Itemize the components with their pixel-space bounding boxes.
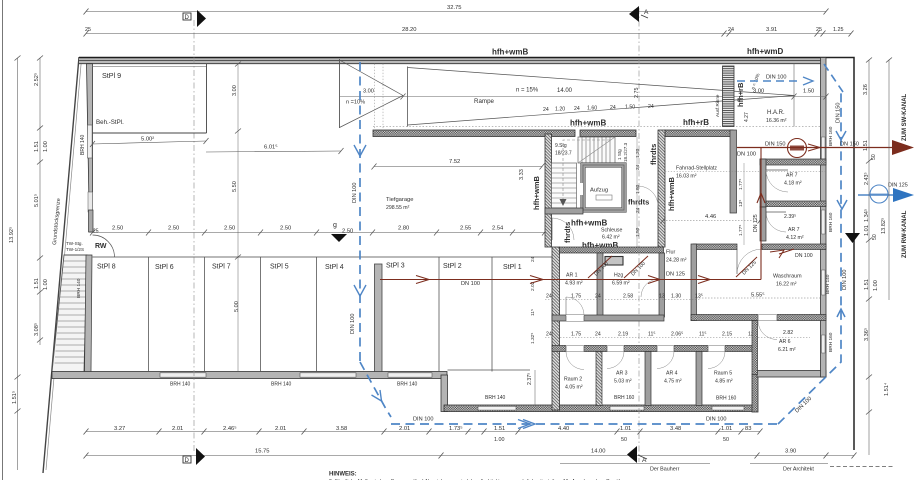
svg-text:1.01: 1.01: [721, 426, 732, 432]
svg-text:18.2/27.3: 18.2/27.3: [623, 142, 628, 162]
svg-text:Der Architekt: Der Architekt: [783, 467, 814, 473]
svg-text:TW-Stg.: TW-Stg.: [66, 241, 83, 246]
svg-text:1.51: 1.51: [34, 141, 40, 152]
svg-text:14.00: 14.00: [557, 88, 573, 94]
svg-text:18/23.7: 18/23.7: [555, 151, 572, 157]
svg-text:2.19: 2.19: [618, 332, 628, 338]
svg-text:n = 15%: n = 15%: [516, 88, 539, 94]
svg-text:50: 50: [871, 154, 877, 160]
svg-text:BRH 140: BRH 140: [80, 134, 86, 155]
svg-text:A: A: [644, 9, 649, 16]
svg-text:HINWEIS:: HINWEIS:: [329, 472, 357, 478]
svg-text:2.50: 2.50: [342, 229, 353, 235]
svg-text:hfh+rB: hfh+rB: [736, 82, 745, 107]
svg-text:n =10%: n =10%: [346, 100, 365, 106]
svg-text:1.77⁵: 1.77⁵: [738, 179, 744, 190]
svg-text:6.21 m²: 6.21 m²: [778, 347, 796, 353]
svg-text:DIN 100: DIN 100: [352, 182, 358, 203]
svg-text:24: 24: [648, 104, 654, 110]
svg-text:RW: RW: [95, 243, 107, 250]
svg-text:2.39⁵: 2.39⁵: [784, 214, 796, 220]
svg-text:StPl 9: StPl 9: [102, 71, 121, 80]
svg-text:fhrdts: fhrdts: [563, 222, 572, 243]
svg-text:13⁵: 13⁵: [695, 294, 703, 300]
svg-text:25: 25: [816, 27, 822, 33]
svg-text:2.46⁵: 2.46⁵: [223, 425, 237, 432]
svg-text:3.00: 3.00: [232, 85, 238, 96]
svg-text:DIN 100: DIN 100: [766, 75, 787, 81]
svg-text:1.75: 1.75: [571, 332, 581, 338]
svg-text:1.51: 1.51: [494, 426, 505, 432]
svg-text:DN 100: DN 100: [737, 152, 756, 158]
svg-text:Beh.-StPl.: Beh.-StPl.: [96, 119, 124, 126]
svg-text:fhrdts: fhrdts: [649, 144, 658, 165]
svg-text:1.34⁵: 1.34⁵: [863, 209, 870, 222]
svg-text:BRH 160: BRH 160: [716, 396, 737, 402]
svg-text:1.77⁵: 1.77⁵: [738, 225, 744, 236]
svg-text:16.36 m²: 16.36 m²: [766, 118, 787, 124]
svg-text:24: 24: [574, 106, 580, 112]
svg-text:4.46: 4.46: [705, 214, 716, 220]
svg-text:2.54: 2.54: [492, 226, 504, 232]
svg-text:11⁵: 11⁵: [530, 309, 536, 316]
svg-text:1.01: 1.01: [864, 225, 870, 236]
svg-text:AR 7: AR 7: [788, 227, 800, 233]
svg-text:2.06⁵: 2.06⁵: [671, 332, 683, 338]
svg-text:2.75: 2.75: [634, 88, 640, 99]
svg-text:83: 83: [745, 426, 751, 432]
svg-text:5.01⁵: 5.01⁵: [33, 194, 40, 207]
svg-text:1.00: 1.00: [43, 279, 49, 290]
svg-text:ZUM RW-KANAL: ZUM RW-KANAL: [902, 210, 908, 258]
svg-text:4.75 m²: 4.75 m²: [664, 379, 682, 385]
svg-text:Waschraum: Waschraum: [773, 274, 802, 280]
svg-text:2.52⁵: 2.52⁵: [33, 73, 40, 86]
svg-text:50: 50: [621, 437, 627, 443]
svg-text:fhrdts: fhrdts: [628, 198, 649, 207]
svg-text:BRH 160: BRH 160: [828, 126, 834, 146]
svg-text:AR 4: AR 4: [666, 371, 678, 377]
svg-text:6.42 m²: 6.42 m²: [602, 235, 620, 241]
svg-text:StPl 8: StPl 8: [97, 264, 116, 271]
svg-text:24: 24: [635, 164, 641, 170]
svg-text:Hzg: Hzg: [614, 273, 623, 279]
svg-text:16.22 m²: 16.22 m²: [776, 282, 797, 288]
svg-text:2.50: 2.50: [224, 226, 235, 232]
svg-text:AR 6: AR 6: [779, 339, 791, 345]
svg-text:TW-1/2S: TW-1/2S: [66, 247, 84, 252]
svg-text:2.01: 2.01: [172, 426, 183, 432]
svg-text:1.75: 1.75: [571, 294, 581, 300]
svg-text:DIN 150: DIN 150: [836, 102, 842, 123]
svg-text:13.82⁵: 13.82⁵: [880, 218, 887, 234]
svg-text:3.91: 3.91: [766, 27, 777, 33]
svg-text:1.20: 1.20: [635, 148, 641, 158]
svg-text:Schleuse: Schleuse: [601, 228, 622, 234]
svg-text:AR 1: AR 1: [566, 273, 578, 279]
svg-text:DN 125: DN 125: [753, 214, 759, 232]
svg-text:5.00²: 5.00²: [141, 137, 154, 143]
svg-text:1.50: 1.50: [625, 105, 635, 111]
svg-text:StPl 5: StPl 5: [270, 264, 289, 271]
svg-text:25: 25: [93, 229, 99, 235]
svg-text:1.50: 1.50: [803, 89, 814, 95]
svg-text:hfh+wmB: hfh+wmB: [667, 176, 676, 211]
svg-text:3.08⁵: 3.08⁵: [33, 323, 40, 336]
svg-text:hfh+wmB: hfh+wmB: [571, 219, 607, 228]
svg-text:25: 25: [85, 27, 91, 33]
svg-text:StPl 3: StPl 3: [386, 263, 405, 270]
svg-text:hfh+rB: hfh+rB: [683, 118, 709, 127]
svg-text:14.00: 14.00: [591, 449, 606, 455]
svg-text:Rampe: Rampe: [474, 98, 495, 105]
svg-text:DIN 100: DIN 100: [350, 313, 356, 334]
svg-text:3.48: 3.48: [670, 426, 681, 432]
svg-text:16.03 m²: 16.03 m²: [676, 174, 697, 180]
svg-text:50: 50: [872, 234, 878, 240]
svg-text:D: D: [185, 15, 190, 21]
svg-text:DN 100: DN 100: [461, 281, 480, 287]
svg-text:3.00: 3.00: [363, 89, 374, 95]
svg-text:2.80: 2.80: [398, 226, 409, 232]
svg-text:Der Bauherr: Der Bauherr: [650, 467, 680, 473]
svg-text:1.01: 1.01: [620, 426, 631, 432]
svg-text:3.26: 3.26: [863, 84, 869, 95]
svg-text:4.85 m²: 4.85 m²: [715, 379, 733, 385]
svg-text:50: 50: [723, 437, 729, 443]
svg-text:2.01: 2.01: [275, 426, 286, 432]
svg-text:Raum 2: Raum 2: [564, 377, 582, 383]
svg-text:1.73⁵: 1.73⁵: [449, 425, 463, 432]
svg-text:BRH 140: BRH 140: [825, 274, 831, 294]
svg-text:1.51⁵: 1.51⁵: [11, 391, 18, 404]
svg-text:1.60: 1.60: [587, 106, 597, 112]
svg-text:2.50: 2.50: [112, 226, 123, 232]
svg-text:24: 24: [595, 332, 601, 338]
svg-text:hfh+wmB: hfh+wmB: [492, 48, 528, 57]
svg-text:2.55: 2.55: [460, 226, 471, 232]
svg-text:6.59 m²: 6.59 m²: [612, 281, 630, 287]
svg-text:5.00: 5.00: [234, 301, 240, 312]
svg-text:StPl 4: StPl 4: [325, 264, 344, 271]
svg-text:1.51: 1.51: [863, 140, 869, 151]
svg-text:4.12 m²: 4.12 m²: [786, 235, 804, 241]
svg-text:3.00: 3.00: [753, 89, 764, 95]
svg-text:2.58: 2.58: [623, 294, 633, 300]
svg-text:3.33: 3.33: [519, 169, 525, 180]
svg-text:4.40: 4.40: [558, 426, 569, 432]
svg-text:2.50: 2.50: [280, 226, 291, 232]
svg-text:DIN 100: DIN 100: [413, 417, 434, 423]
svg-text:BRH 160: BRH 160: [614, 395, 635, 401]
svg-text:9.Stg: 9.Stg: [555, 143, 567, 149]
svg-text:13.92⁵: 13.92⁵: [8, 227, 15, 243]
svg-text:1.25: 1.25: [833, 27, 844, 33]
svg-text:6.01⁵: 6.01⁵: [264, 144, 278, 151]
svg-text:2.37⁵: 2.37⁵: [527, 373, 533, 385]
svg-text:StPl 1: StPl 1: [503, 264, 522, 271]
svg-text:24: 24: [728, 27, 734, 33]
svg-text:1.51: 1.51: [864, 279, 870, 290]
svg-text:BRH 140: BRH 140: [485, 395, 506, 401]
svg-text:3.58: 3.58: [336, 426, 347, 432]
svg-text:2.15: 2.15: [722, 332, 732, 338]
svg-text:BRH 140: BRH 140: [397, 382, 418, 388]
svg-text:298.55 m²: 298.55 m²: [386, 205, 410, 211]
svg-text:24.28 m²: 24.28 m²: [666, 258, 687, 264]
svg-text:24: 24: [530, 256, 536, 262]
svg-text:DN 150: DN 150: [840, 142, 859, 148]
svg-text:BRH 160: BRH 160: [828, 332, 834, 352]
svg-text:hfh+wmB: hfh+wmB: [570, 119, 606, 128]
svg-text:3.27: 3.27: [114, 426, 125, 432]
svg-text:5.50: 5.50: [232, 181, 238, 192]
svg-text:13⁵: 13⁵: [738, 200, 744, 207]
svg-text:24: 24: [635, 207, 641, 213]
svg-text:hfh+wmD: hfh+wmD: [747, 47, 783, 56]
svg-text:1.00: 1.00: [873, 280, 879, 291]
svg-text:28.20: 28.20: [402, 27, 417, 33]
svg-text:DIN 125: DIN 125: [888, 183, 908, 189]
svg-text:1.20: 1.20: [555, 107, 565, 113]
svg-text:4.18 m²: 4.18 m²: [784, 181, 802, 187]
svg-text:g: g: [333, 222, 337, 229]
svg-text:StPl 2: StPl 2: [443, 263, 462, 270]
svg-text:H.A.R.: H.A.R.: [767, 110, 785, 116]
svg-text:AR 7: AR 7: [786, 173, 798, 179]
svg-text:15.75: 15.75: [255, 449, 270, 455]
svg-text:DIN 100: DIN 100: [842, 269, 848, 290]
svg-text:StPl 6: StPl 6: [155, 264, 174, 271]
svg-text:BRH 140: BRH 140: [76, 278, 82, 298]
svg-text:DN 125: DN 125: [666, 272, 685, 278]
svg-text:11⁵: 11⁵: [699, 332, 707, 338]
svg-text:4.93 m²: 4.93 m²: [565, 281, 583, 287]
svg-text:DN 100: DN 100: [795, 253, 813, 259]
svg-text:1.00: 1.00: [43, 141, 49, 152]
svg-text:24: 24: [546, 332, 552, 338]
svg-text:24: 24: [546, 294, 552, 300]
svg-text:2.01: 2.01: [399, 426, 410, 432]
svg-text:BRH 140: BRH 140: [170, 382, 191, 388]
svg-text:Fahrrad-Stellplatz: Fahrrad-Stellplatz: [676, 166, 717, 172]
svg-text:Flur: Flur: [666, 250, 675, 256]
svg-text:1 Stg: 1 Stg: [617, 149, 622, 160]
svg-text:24: 24: [543, 107, 549, 113]
svg-text:1.50: 1.50: [635, 227, 641, 237]
svg-text:BRH 160: BRH 160: [828, 212, 834, 232]
svg-text:Tiefgarage: Tiefgarage: [386, 197, 414, 203]
svg-text:24: 24: [595, 294, 601, 300]
svg-text:2.82: 2.82: [783, 330, 793, 336]
svg-text:3.90: 3.90: [785, 449, 796, 455]
svg-text:4.27: 4.27: [744, 112, 750, 122]
svg-text:32.75: 32.75: [447, 5, 462, 11]
svg-text:1.30: 1.30: [671, 294, 681, 300]
svg-text:1.32⁵: 1.32⁵: [530, 333, 536, 344]
svg-text:13: 13: [659, 294, 665, 300]
svg-text:5.55⁵: 5.55⁵: [751, 292, 765, 299]
svg-text:DIN 100: DIN 100: [706, 417, 727, 423]
svg-text:BRH 140: BRH 140: [271, 382, 292, 388]
svg-text:Aufzug: Aufzug: [590, 188, 608, 194]
svg-text:7.52: 7.52: [449, 159, 460, 165]
svg-text:1.00: 1.00: [494, 437, 505, 443]
svg-text:3.36⁵: 3.36⁵: [863, 328, 870, 341]
svg-text:AR 3: AR 3: [616, 371, 628, 377]
svg-text:4.05 m²: 4.05 m²: [565, 385, 583, 391]
svg-text:hfh+wmB: hfh+wmB: [532, 175, 541, 210]
svg-text:StPl 7: StPl 7: [212, 264, 231, 271]
svg-text:2.50: 2.50: [168, 226, 179, 232]
svg-text:D: D: [185, 458, 190, 464]
svg-text:11⁵: 11⁵: [648, 332, 656, 338]
svg-text:5.03 m²: 5.03 m²: [614, 379, 632, 385]
svg-text:1.51⁴: 1.51⁴: [883, 382, 890, 396]
svg-text:24: 24: [610, 105, 616, 111]
svg-text:DIN 150: DIN 150: [765, 142, 786, 148]
svg-text:Ausf.Rinne: Ausf.Rinne: [715, 94, 720, 117]
svg-text:ZUM SW-KANAL: ZUM SW-KANAL: [902, 93, 908, 141]
svg-text:Raum 5: Raum 5: [714, 371, 732, 377]
svg-text:1.51: 1.51: [34, 278, 40, 289]
